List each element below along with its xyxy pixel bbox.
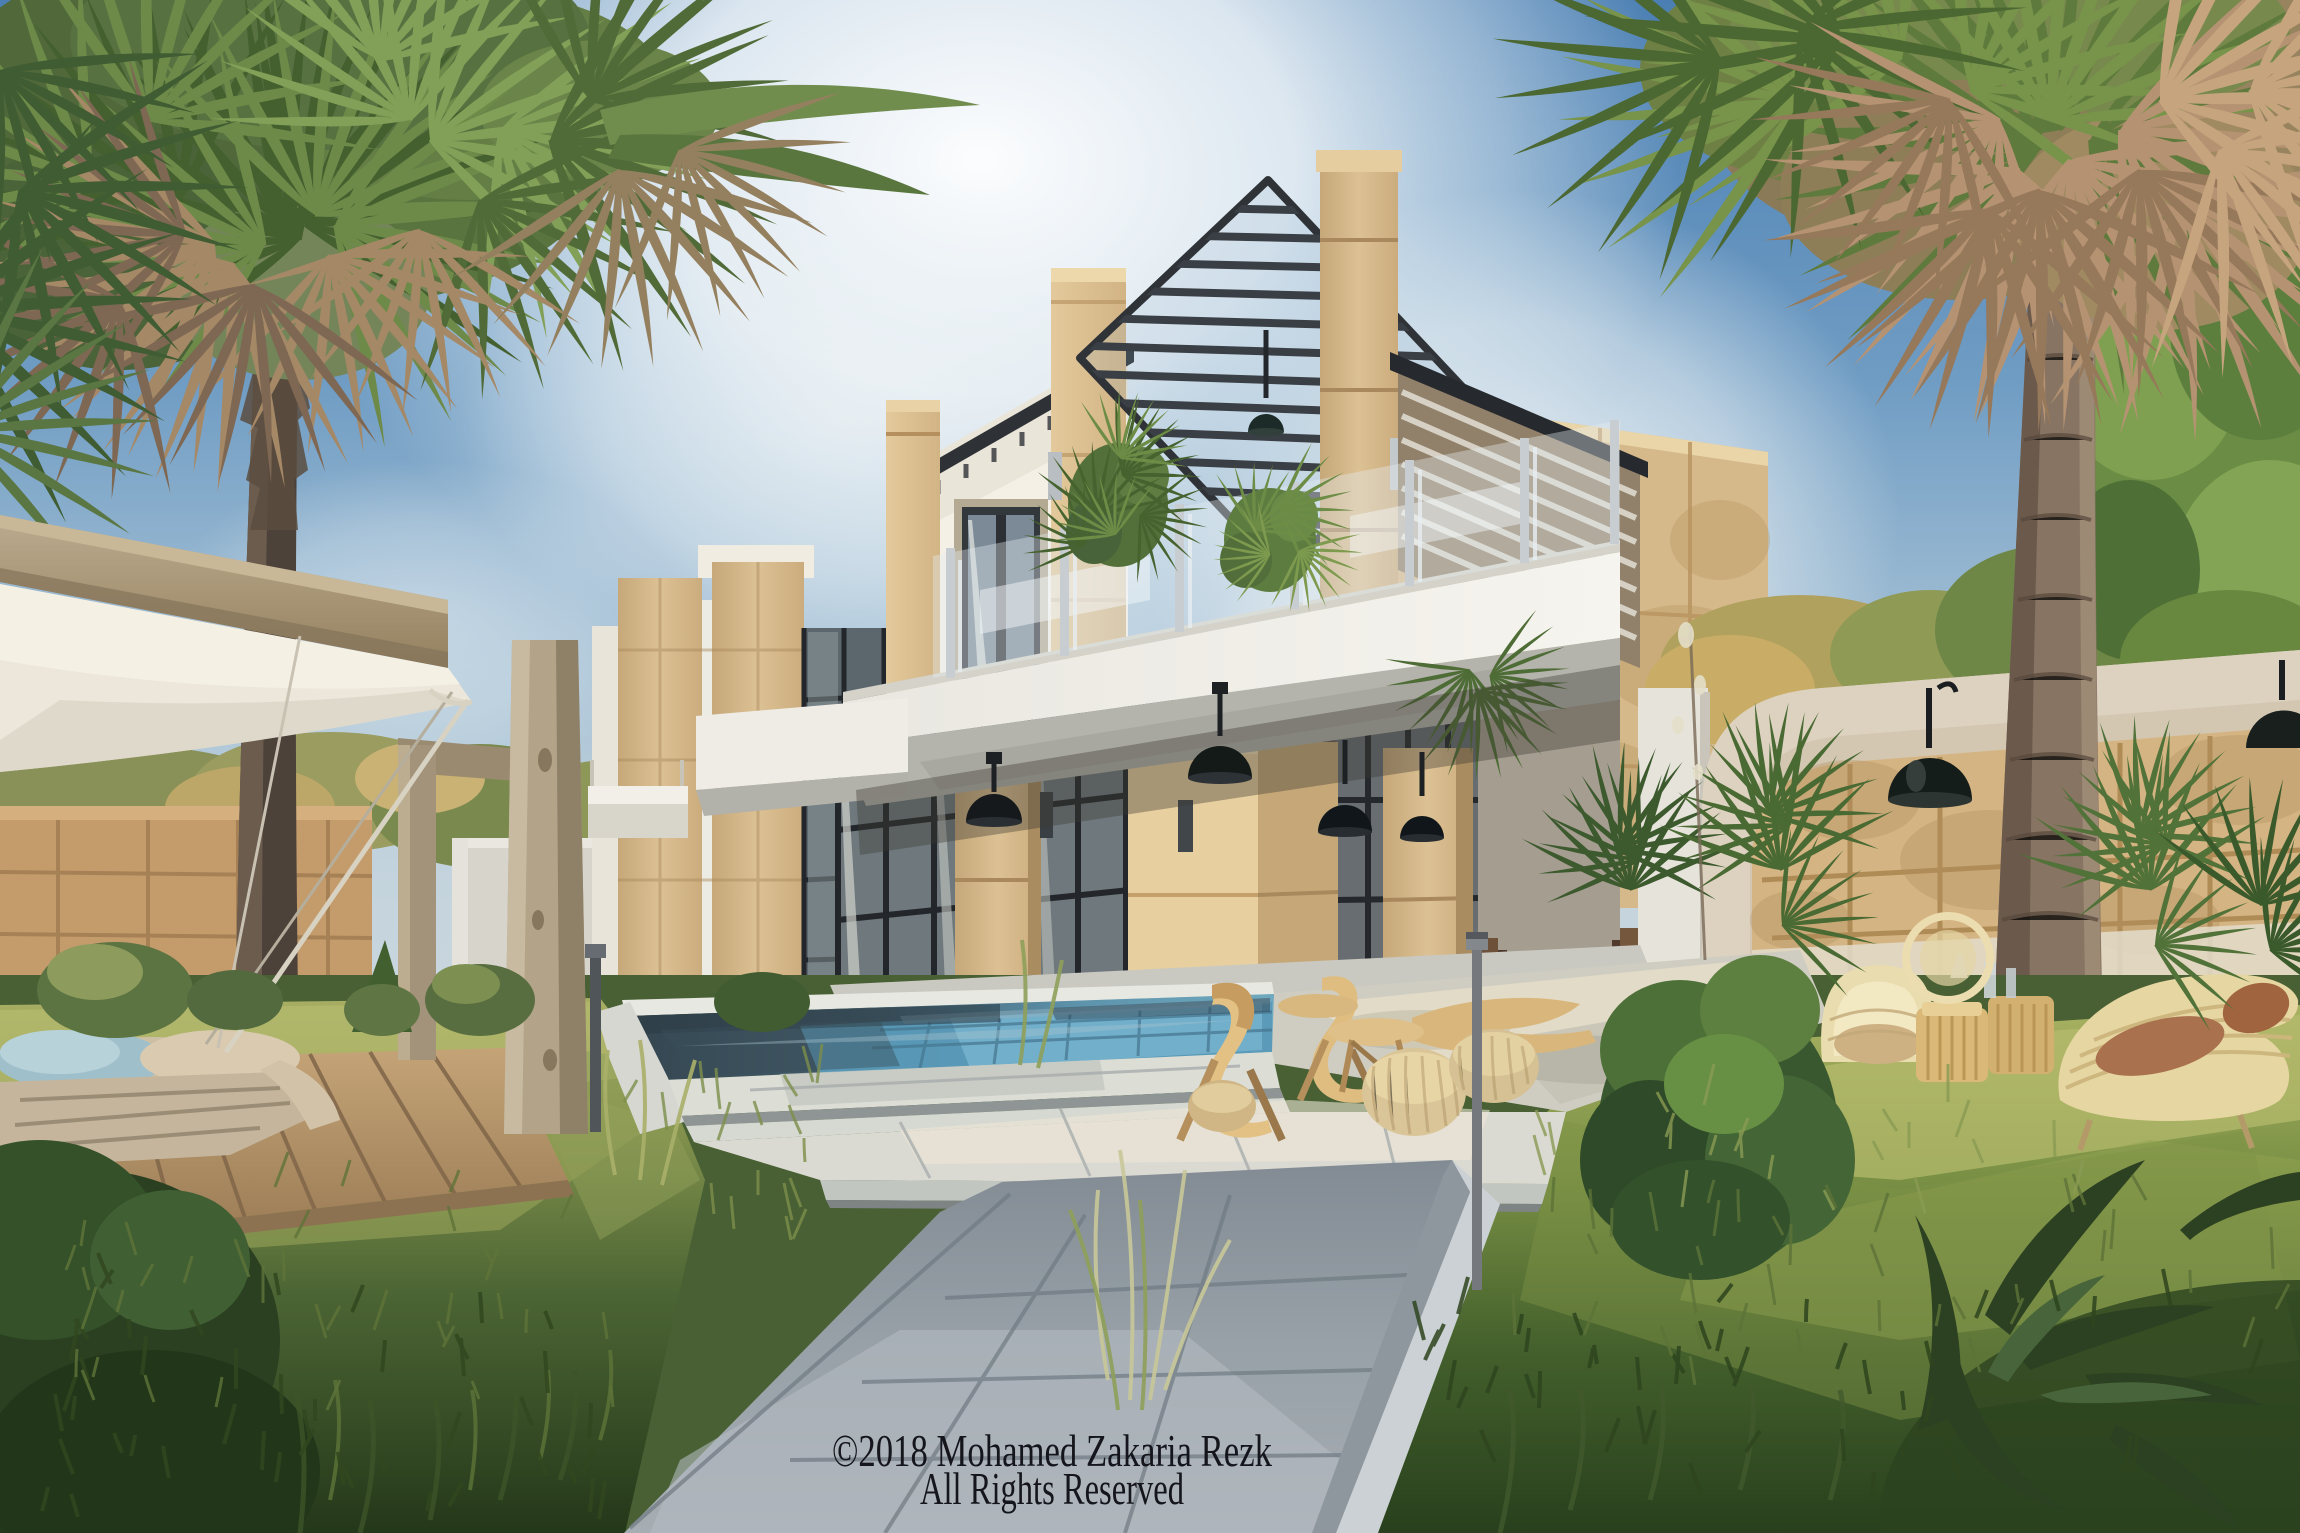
svg-text:All Rights Reserved: All Rights Reserved [920,1463,1184,1514]
